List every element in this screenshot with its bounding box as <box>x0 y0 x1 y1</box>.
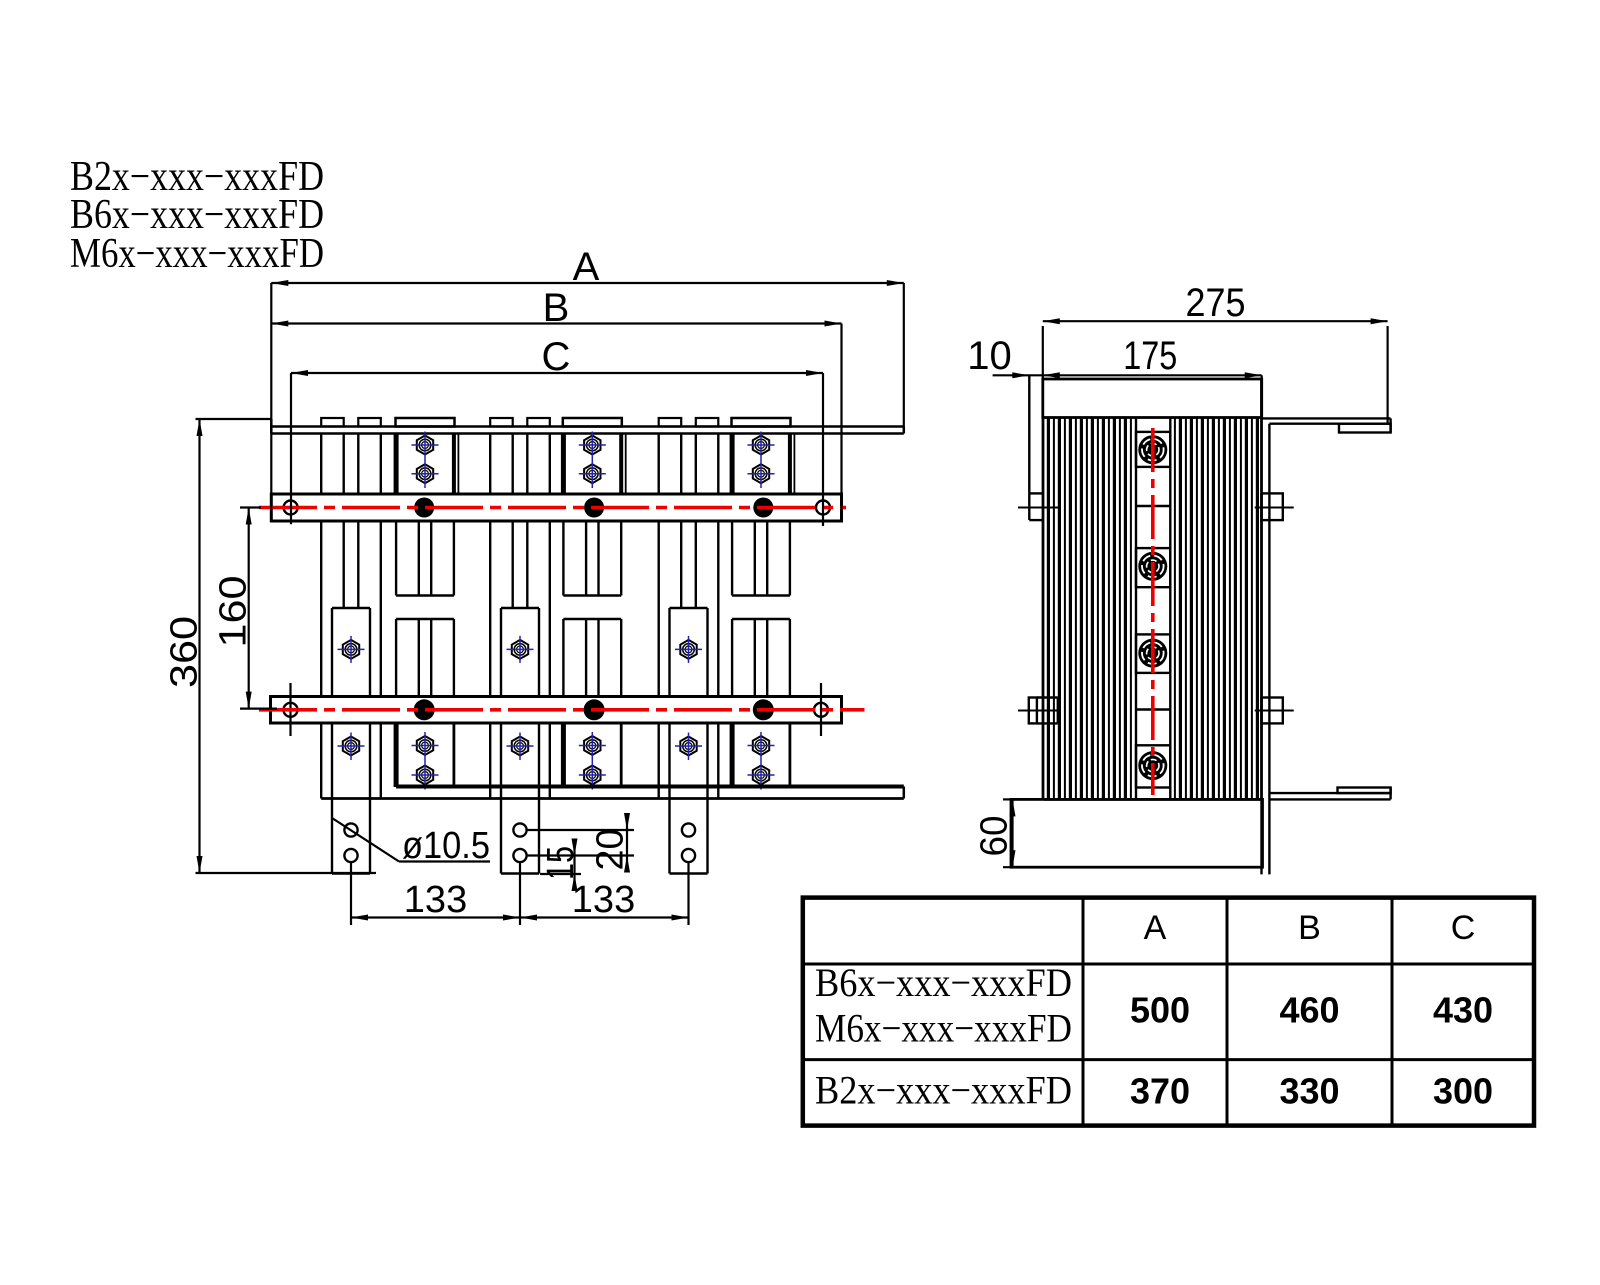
svg-text:15: 15 <box>540 846 582 880</box>
svg-text:370: 370 <box>1130 1070 1190 1111</box>
svg-text:500: 500 <box>1130 990 1190 1031</box>
svg-text:B2x−xxx−xxxFD: B2x−xxx−xxxFD <box>815 1067 1072 1112</box>
svg-text:430: 430 <box>1433 990 1493 1031</box>
svg-text:300: 300 <box>1433 1070 1493 1111</box>
svg-text:M6x−xxx−xxxFD: M6x−xxx−xxxFD <box>815 1006 1072 1051</box>
svg-text:B6x−xxx−xxxFD: B6x−xxx−xxxFD <box>815 960 1072 1005</box>
svg-text:460: 460 <box>1279 990 1339 1031</box>
svg-text:275: 275 <box>1186 281 1246 325</box>
svg-text:M6x−xxx−xxxFD: M6x−xxx−xxxFD <box>70 231 324 277</box>
svg-text:10: 10 <box>967 334 1012 378</box>
svg-text:360: 360 <box>164 616 206 688</box>
svg-text:160: 160 <box>212 576 254 648</box>
svg-text:175: 175 <box>1123 334 1177 378</box>
svg-text:133: 133 <box>572 879 635 921</box>
svg-text:A: A <box>573 245 600 289</box>
svg-text:B: B <box>543 286 570 330</box>
svg-text:A: A <box>1144 909 1167 947</box>
svg-text:133: 133 <box>404 879 467 921</box>
svg-text:C: C <box>542 335 571 379</box>
svg-text:330: 330 <box>1279 1070 1339 1111</box>
svg-text:60: 60 <box>973 816 1015 857</box>
svg-text:C: C <box>1451 909 1476 947</box>
svg-text:ø10.5: ø10.5 <box>402 825 490 867</box>
svg-text:B: B <box>1298 909 1321 947</box>
svg-text:20: 20 <box>590 829 632 871</box>
